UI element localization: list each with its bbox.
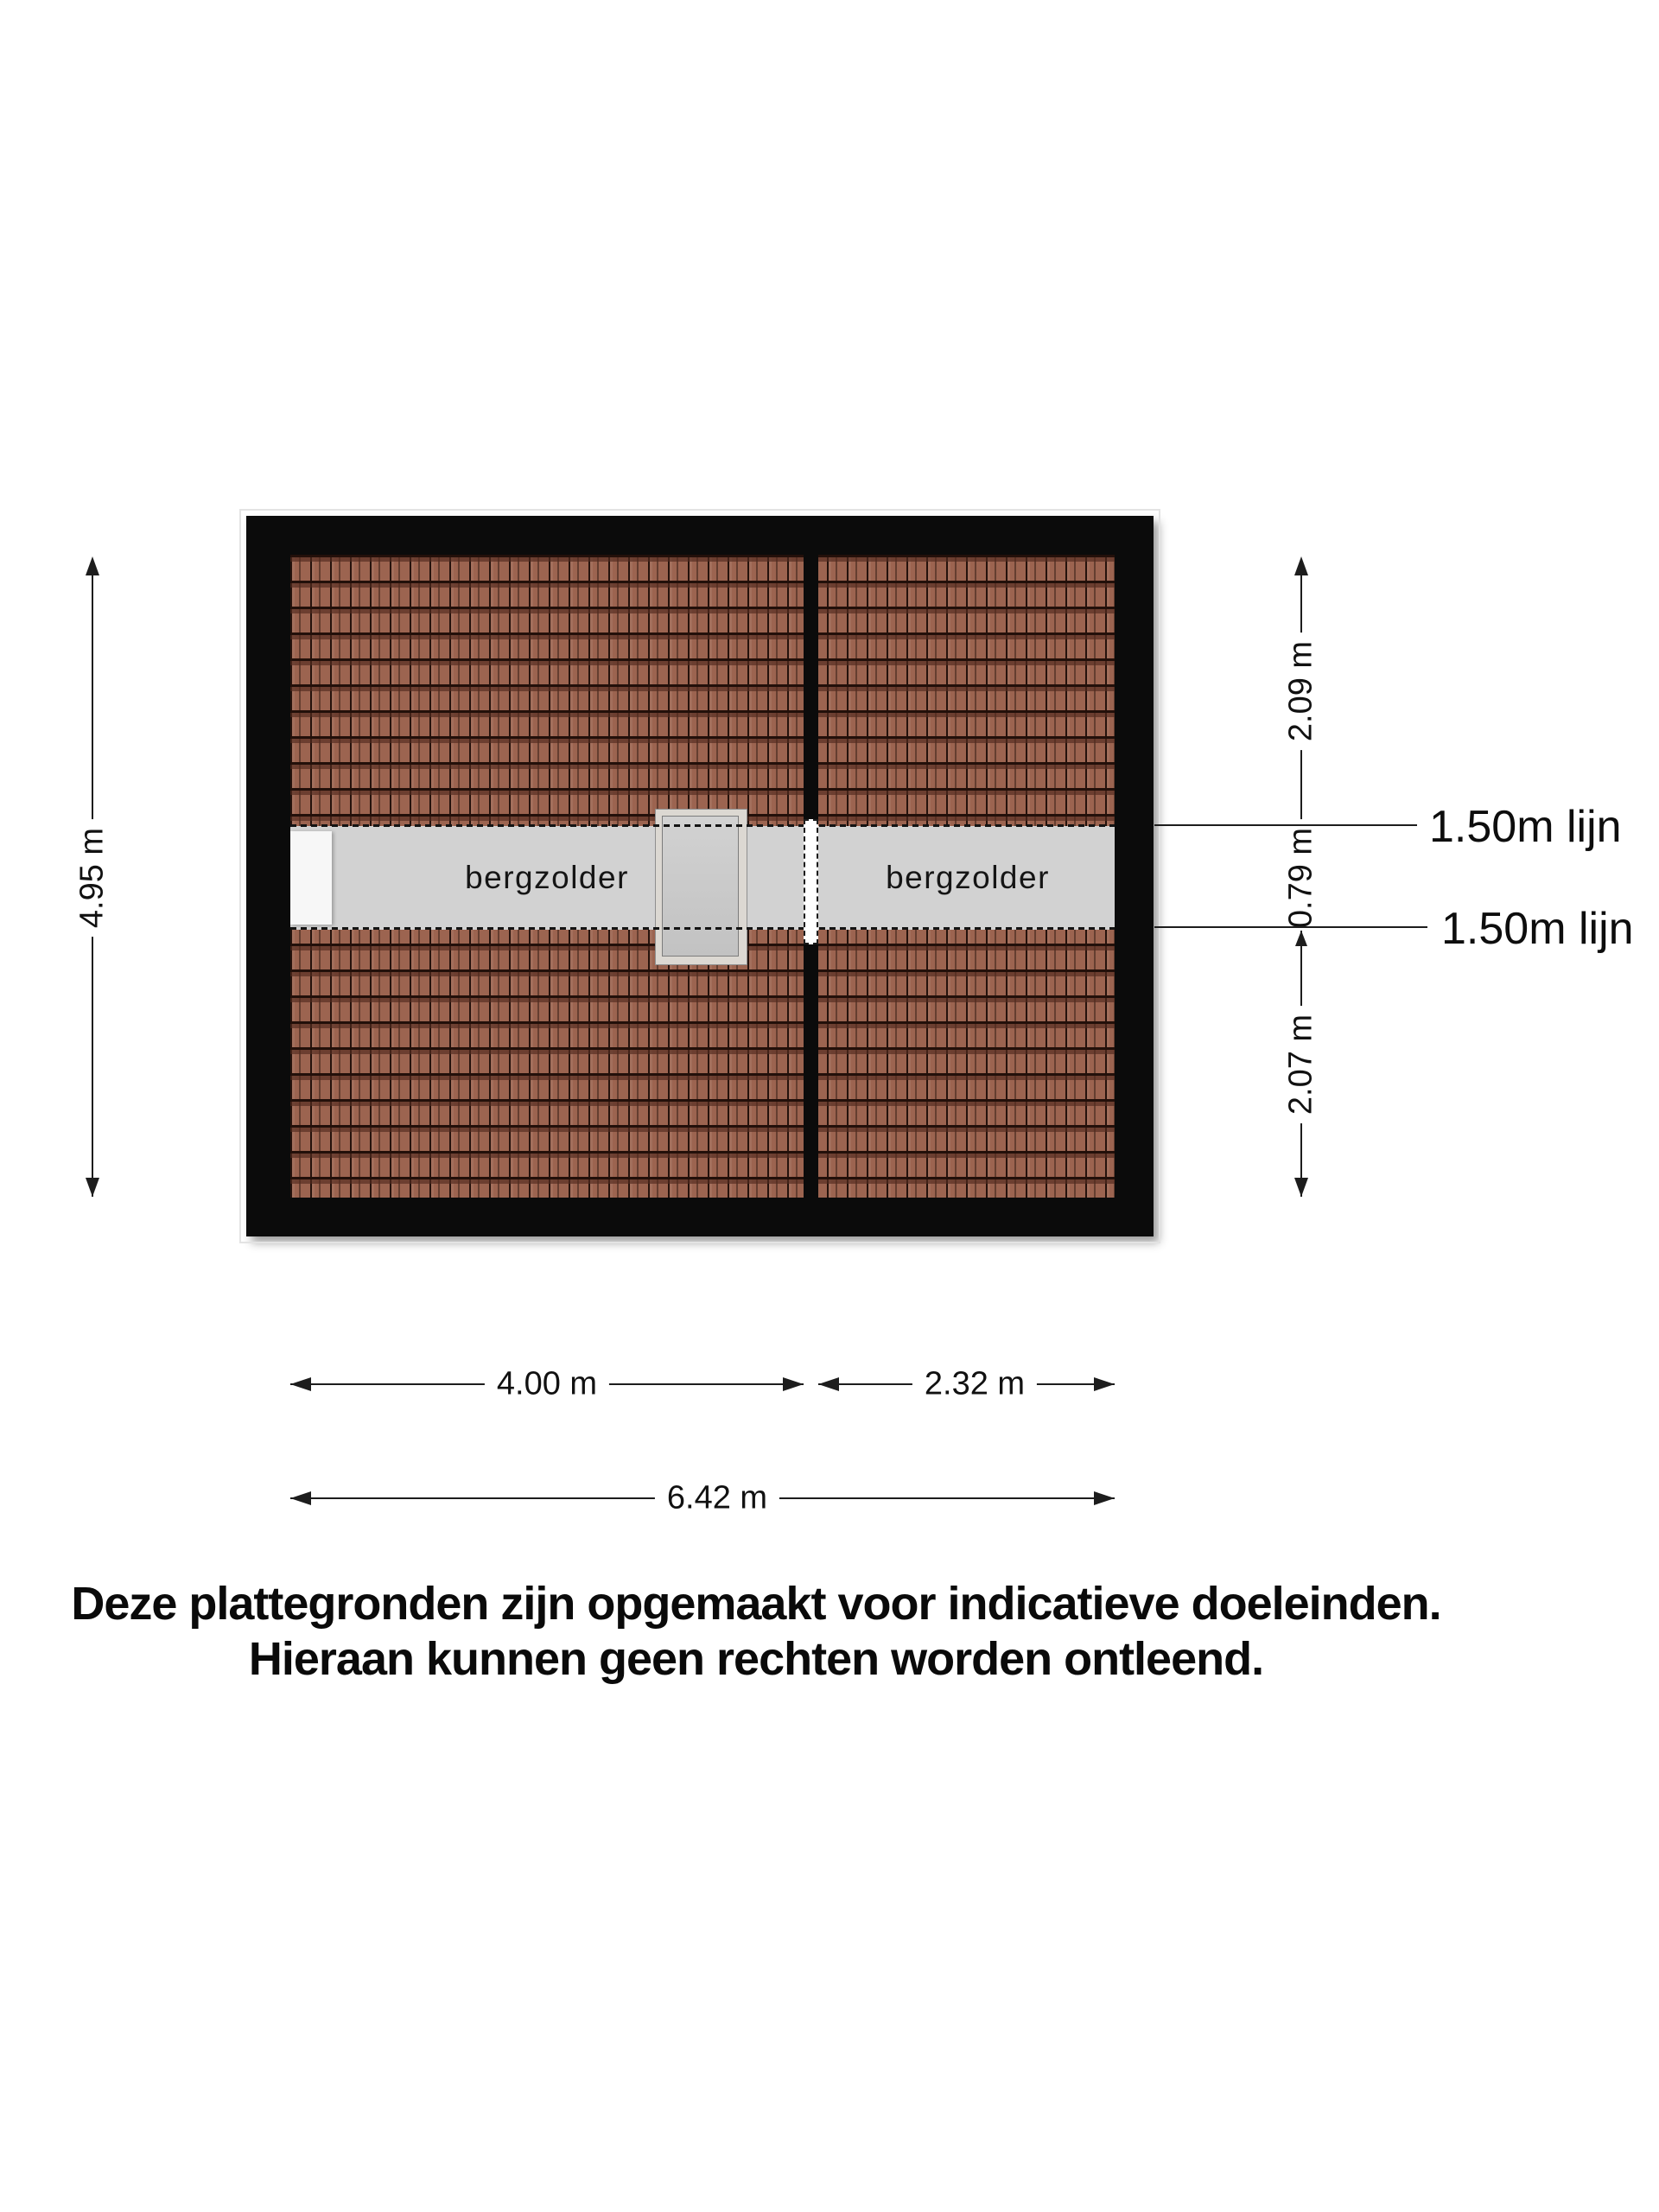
room-label-left: bergzolder bbox=[465, 860, 629, 896]
arrow-down-icon bbox=[1294, 1178, 1308, 1197]
arrow-up-icon bbox=[86, 556, 99, 575]
headroom-line-bottom bbox=[1154, 926, 1427, 928]
attic-floor-dashed-top bbox=[290, 824, 1115, 827]
room-label-right: bergzolder bbox=[886, 860, 1050, 896]
disclaimer-line2: Hieraan kunnen geen rechten worden ontle… bbox=[71, 1631, 1440, 1687]
dim-label-width-right: 2.32 m bbox=[912, 1364, 1037, 1405]
headroom-label-bottom: 1.50m lijn bbox=[1441, 903, 1634, 955]
dim-label-width-total: 6.42 m bbox=[655, 1478, 779, 1519]
dim-label-height-total: 4.95 m bbox=[71, 819, 115, 937]
disclaimer-line1: Deze plattegronden zijn opgemaakt voor i… bbox=[71, 1576, 1440, 1631]
dormer-window-inner bbox=[662, 816, 739, 957]
page: { "plan": { "rooms": [ { "label": "bergz… bbox=[0, 0, 1659, 2212]
arrow-right-icon bbox=[1094, 1491, 1115, 1505]
dim-label-width-left: 4.00 m bbox=[485, 1364, 609, 1405]
roof-tiles: bergzolder bergzolder bbox=[290, 555, 1115, 1198]
dormer-window bbox=[655, 809, 747, 965]
floor-plan: bergzolder bergzolder bbox=[246, 516, 1154, 1236]
arrow-left-icon bbox=[290, 1377, 311, 1391]
wall-recess bbox=[290, 831, 332, 925]
headroom-label-top: 1.50m lijn bbox=[1429, 801, 1622, 853]
dim-label-right-middle: 0.79 m bbox=[1280, 819, 1324, 937]
attic-floor-dashed-bottom bbox=[290, 927, 1115, 930]
arrow-down-icon bbox=[86, 1178, 99, 1197]
arrow-left-icon bbox=[290, 1491, 311, 1505]
arrow-left-icon bbox=[818, 1377, 839, 1391]
arrow-right-icon bbox=[783, 1377, 804, 1391]
headroom-line-top bbox=[1154, 824, 1417, 826]
arrow-right-icon bbox=[1094, 1377, 1115, 1391]
disclaimer: Deze plattegronden zijn opgemaakt voor i… bbox=[71, 1576, 1440, 1687]
door-opening bbox=[804, 819, 818, 944]
dim-label-right-top: 2.09 m bbox=[1280, 632, 1324, 750]
dim-label-right-bottom: 2.07 m bbox=[1280, 1006, 1324, 1123]
arrow-up-icon bbox=[1294, 556, 1308, 575]
